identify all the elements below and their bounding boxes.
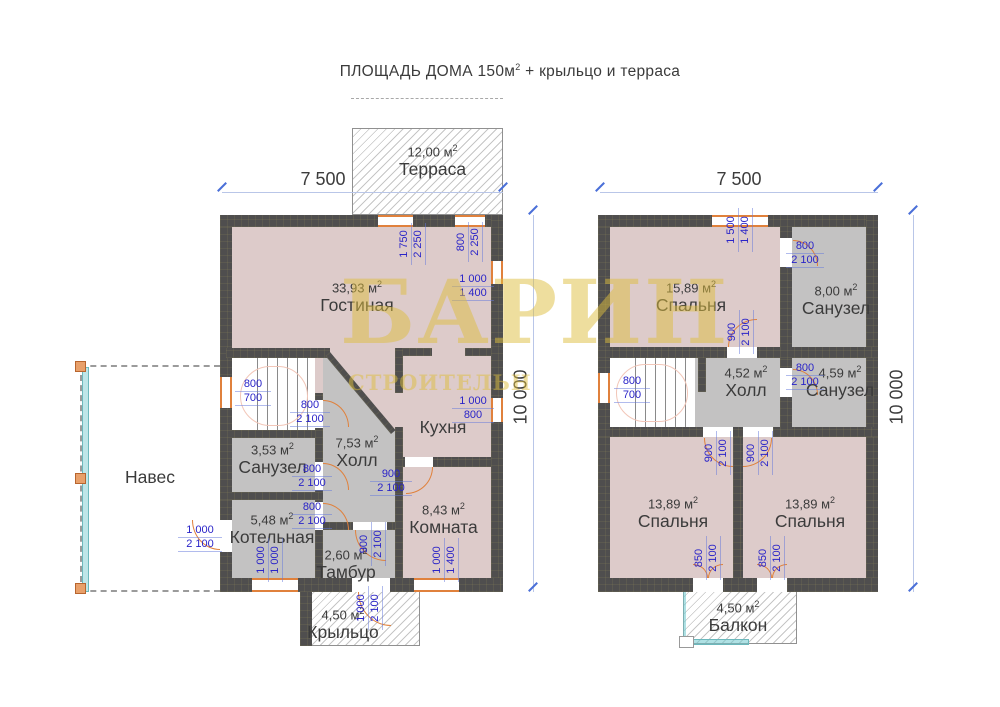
label-room: 8,43 м2Комната — [401, 501, 486, 537]
dim-line-top-f2 — [600, 192, 878, 193]
dim-stairs-door: 8002 100 — [290, 399, 330, 427]
dim-room-window: 1 0001 400 — [431, 538, 459, 582]
wall — [866, 215, 878, 592]
label-bedroom2: 13,89 м2Спальня — [631, 495, 715, 531]
dim-line-right-f1 — [533, 215, 534, 592]
wall — [598, 215, 610, 592]
page-title: ПЛОЩАДЬ ДОМА 150м2 + крыльцо и терраса — [320, 62, 700, 81]
roof-dashed-line — [351, 98, 503, 99]
dim-room-door: 9002 100 — [370, 468, 412, 496]
dim-tick — [217, 182, 227, 192]
wall — [220, 492, 323, 500]
dim-bathroom-door: 8002 100 — [292, 463, 332, 491]
dim-vestibule-door: 9002 100 — [358, 522, 386, 566]
dim-bathroom1-door: 8002 100 — [786, 240, 824, 268]
dim-terrace-door: 8002 250 — [455, 222, 483, 262]
door-opening — [693, 578, 723, 592]
door-opening — [405, 457, 433, 467]
dim-bedroom2-door: 9002 100 — [703, 431, 731, 475]
wall — [698, 358, 706, 392]
wall — [598, 578, 878, 592]
dim-height-f1: 10 000 — [511, 375, 532, 425]
dim-tick — [595, 182, 605, 192]
dim-height-f2: 10 000 — [887, 377, 908, 425]
balcony-post — [679, 636, 694, 648]
dim-line-top-f1 — [222, 192, 503, 193]
balcony-rail — [685, 639, 749, 645]
dim-tick — [528, 205, 538, 215]
stairs-window-f2 — [598, 373, 610, 403]
dim-width-f2: 7 500 — [689, 169, 789, 190]
dim-boiler-window: 1 0001 000 — [255, 538, 283, 582]
canopy-post — [75, 583, 86, 594]
dim-porch-door: 1 0002 100 — [355, 586, 383, 630]
floor-plan-canvas: ПЛОЩАДЬ ДОМА 150м2 + крыльцо и терраса — [0, 0, 1000, 707]
wall — [395, 348, 403, 393]
dim-stairs-window-f1: 800700 — [235, 378, 271, 406]
wall — [226, 348, 330, 358]
wall — [598, 427, 878, 437]
dim-line-right-f2 — [913, 215, 914, 592]
dim-tick — [873, 182, 883, 192]
label-bedroom3: 13,89 м2Спальня — [768, 495, 852, 531]
wall — [465, 348, 491, 356]
dim-bedroom3-door: 9002 100 — [745, 431, 773, 475]
dim-width-f1: 7 500 — [268, 169, 378, 190]
dim-top-window-f2: 1 5001 400 — [725, 208, 753, 252]
dim-terrace-window: 1 7502 250 — [398, 223, 426, 265]
label-terrace: 12,00 м2Терраса — [385, 143, 480, 179]
dim-stairs-window-f2: 800700 — [614, 375, 650, 403]
dim-balcony-door-right: 8502 100 — [757, 536, 785, 580]
wall — [220, 430, 323, 438]
dim-living-window: 1 0001 400 — [452, 273, 494, 301]
wall — [733, 437, 743, 578]
dim-bathroom2-door: 8002 100 — [786, 362, 824, 390]
dim-bedroom1-door: 9002 100 — [726, 310, 754, 354]
canopy-post — [75, 361, 86, 372]
label-hall-f2: 4,52 м2Холл — [706, 364, 786, 400]
label-bedroom1: 15,89 м2Спальня — [650, 279, 732, 315]
dim-boiler-door: 8002 100 — [292, 501, 332, 529]
dim-tick — [908, 205, 918, 215]
dim-balcony-door-left: 8502 100 — [693, 536, 721, 580]
dim-canopy-door: 1 0002 100 — [178, 524, 222, 552]
label-canopy: Навес — [110, 468, 190, 488]
door-opening — [757, 578, 787, 592]
dim-kitchen-window: 1 000800 — [452, 395, 494, 423]
label-balcony: 4,50 м2Балкон — [697, 599, 779, 635]
canopy-post — [75, 473, 86, 484]
stairs-window-f1 — [220, 377, 232, 408]
label-living: 33,93 м2Гостиная — [287, 279, 427, 315]
label-bathroom1-f2: 8,00 м2Санузел — [795, 282, 877, 318]
